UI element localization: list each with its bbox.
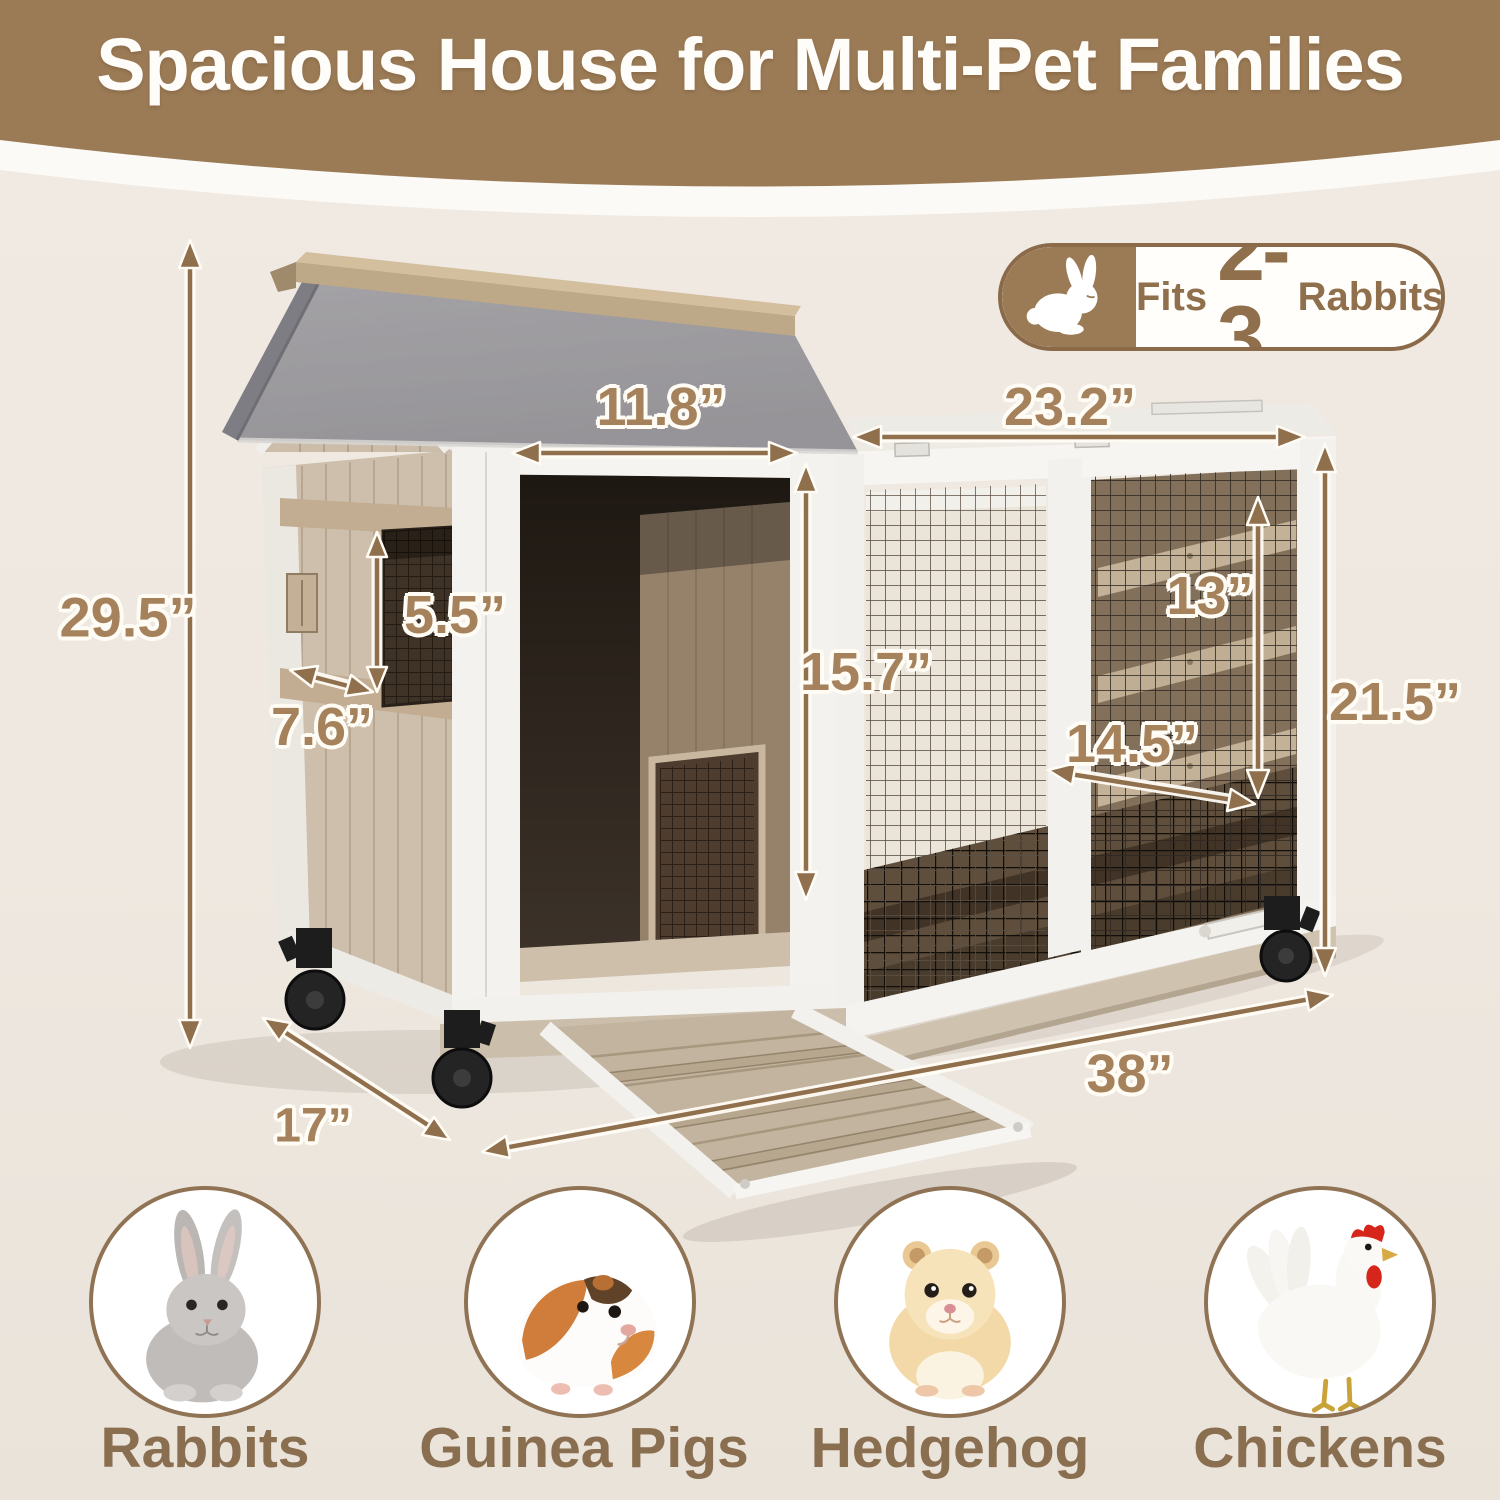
page-title: Spacious House for Multi-Pet Families <box>0 24 1500 105</box>
dim-window-width: 7.6” <box>271 696 373 758</box>
chicken-photo-icon <box>1208 1190 1432 1414</box>
dim-interior-height: 13” <box>1166 565 1253 627</box>
dim-window-height: 5.5” <box>404 584 506 646</box>
dim-overall-width: 38” <box>1086 1043 1173 1105</box>
animal-circle-rabbits <box>89 1186 321 1418</box>
hamster-photo-icon <box>838 1190 1062 1414</box>
dim-run-width: 23.2” <box>1004 376 1136 438</box>
badge-text: Fits 2-3 Rabbits <box>1136 243 1444 351</box>
rabbit-photo-icon <box>93 1190 317 1414</box>
lid-handle <box>1152 400 1262 414</box>
animal-circle-hedgehog <box>834 1186 1066 1418</box>
guinea-pig-photo-icon <box>468 1190 692 1414</box>
rabbit-icon <box>1023 255 1115 339</box>
product-infographic: Spacious House for Multi-Pet Families Fi… <box>0 0 1500 1500</box>
inner-door <box>652 748 762 966</box>
dim-base-depth: 17” <box>274 1099 351 1154</box>
front-right-post <box>790 450 836 1006</box>
animal-label: Hedgehog <box>811 1415 1090 1481</box>
lid-hinge <box>895 442 929 456</box>
animal-circle-chickens <box>1204 1186 1436 1418</box>
dim-door-width: 11.8” <box>596 376 725 438</box>
animal-label: Rabbits <box>100 1415 309 1481</box>
badge-capacity: 2-3 <box>1217 243 1287 351</box>
run-mesh-panel <box>866 484 1046 1004</box>
capacity-badge: Fits 2-3 Rabbits <box>998 243 1445 351</box>
dim-door-height: 15.7” <box>800 641 932 703</box>
badge-fits-label: Fits <box>1136 275 1207 320</box>
badge-unit-label: Rabbits <box>1298 275 1445 320</box>
run-door-mesh <box>1090 458 1298 950</box>
animal-label: Guinea Pigs <box>419 1415 748 1481</box>
animal-label: Chickens <box>1193 1415 1446 1481</box>
dim-run-height: 21.5” <box>1329 671 1461 733</box>
dim-run-depth: 14.5” <box>1066 713 1198 775</box>
roof <box>222 252 858 452</box>
badge-brown-section <box>1002 247 1136 347</box>
dim-overall-height: 29.5” <box>60 585 197 650</box>
animal-circle-guinea-pigs <box>464 1186 696 1418</box>
house-doorway <box>520 474 790 982</box>
